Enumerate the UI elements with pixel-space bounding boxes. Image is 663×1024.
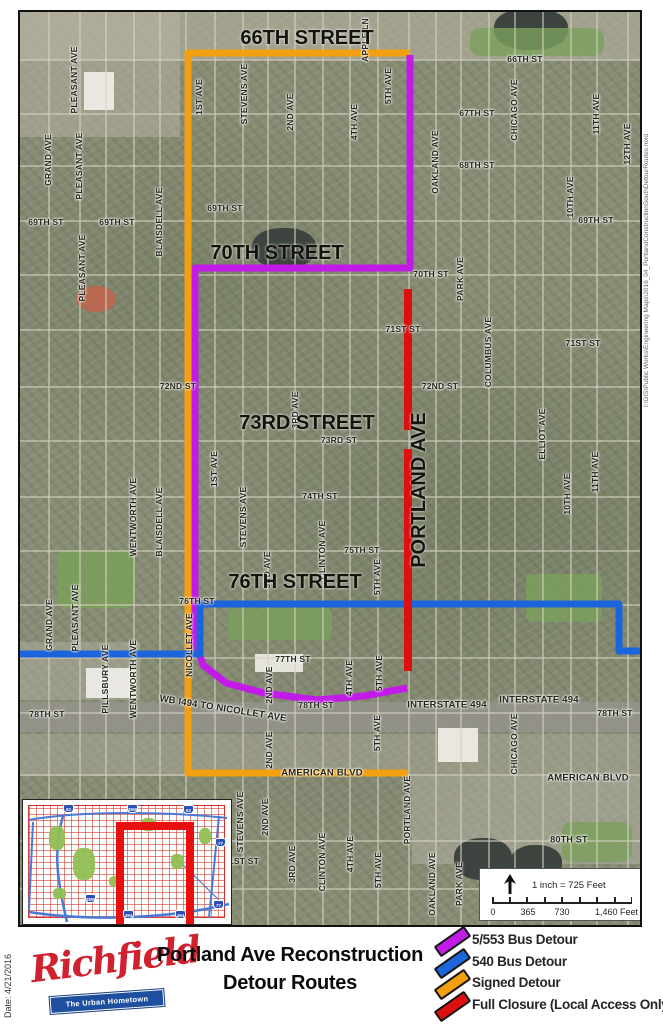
map-feature [57,550,135,608]
street-label: 72ND ST [160,382,196,391]
street-line [460,12,462,925]
map-feature [470,28,604,56]
scale-bar [492,902,632,904]
street-label: 4TH AVE [346,836,355,872]
legend-swatch-wrap [430,929,472,950]
street-label: PLEASANT AVE [78,234,87,301]
street-label: STEVENS AVE [236,792,245,853]
major-street-label: PORTLAND AVE [409,412,429,568]
major-street-label: 70TH STREET [210,243,343,263]
street-line [294,12,296,925]
street-line [20,165,640,167]
inset-park [171,854,184,869]
street-label: 5TH AVE [384,68,393,104]
street-label: INTERSTATE 494 [407,700,487,710]
street-label: 10TH AVE [563,473,572,514]
map-feature [84,72,114,110]
street-label: OAKLAND AVE [431,130,440,194]
street-line [20,274,640,276]
legend-row: 540 Bus Detour [430,951,663,973]
major-street-label: 66TH STREET [240,28,373,48]
map-title-line1: Portland Ave Reconstruction [150,944,430,967]
street-line [570,12,572,925]
street-label: OAKLAND AVE [428,852,437,916]
street-label: 4TH AVE [350,104,359,140]
legend-label: Full Closure (Local Access Only) [472,997,663,1012]
legend: 5/553 Bus Detour540 Bus DetourSigned Det… [430,929,663,1015]
highway-shield: 35W [127,804,138,813]
legend-row: Full Closure (Local Access Only) [430,994,663,1016]
street-line [488,12,490,925]
street-label: GRAND AVE [44,134,53,186]
highway-shield: 35W [85,894,96,903]
scale-ratio-label: 1 inch = 725 Feet [532,880,606,891]
street-label: 70TH ST [413,270,448,279]
street-label: 2ND AVE [265,731,274,768]
street-label: 78TH ST [597,709,632,718]
street-label: PARK AVE [455,862,464,906]
scale-tick-730: 730 [554,907,569,917]
legend-row: 5/553 Bus Detour [430,929,663,951]
richfield-logo-tagline: The Urban Hometown [50,989,165,1014]
street-label: GRAND AVE [45,599,54,651]
street-label: 12TH AVE [623,123,632,164]
street-line [20,59,640,61]
street-line [20,604,640,606]
legend-label: Signed Detour [472,975,560,990]
inset-park [49,826,65,850]
street-line [20,113,640,115]
highway-shield: 494 [175,910,186,919]
street-label: 75TH ST [344,546,379,555]
street-label: 77TH ST [275,655,310,664]
street-line [542,12,544,925]
street-label: 11TH AVE [592,94,601,135]
street-label: 78TH ST [29,710,64,719]
map-feature [526,574,602,622]
street-label: 69TH ST [207,204,242,213]
map-title-line2: Detour Routes [150,972,430,995]
street-label: NICOLLET AVE [185,613,194,677]
street-label: INTERSTATE 494 [499,695,579,705]
major-street-label: 76TH STREET [228,572,361,592]
street-line [349,12,351,925]
street-label: 71ST ST [386,325,421,334]
street-label: AMERICAN BLVD [281,768,363,778]
street-label: WENTWORTH AVE [129,478,138,557]
street-line [159,12,161,925]
highway-shield: 62 [63,804,74,813]
street-label: 68TH ST [459,161,494,170]
street-line [242,12,244,925]
scale-tick-365: 365 [520,907,535,917]
street-label: 69TH ST [28,218,63,227]
legend-swatch-wrap [430,994,472,1015]
legend-row: Signed Detour [430,972,663,994]
street-label: AMERICAN BLVD [547,773,629,783]
highway-shield: 62 [183,805,194,814]
street-label: 69TH ST [578,216,613,225]
inset-park [199,828,211,844]
scale-bar-box: 1 inch = 725 Feet 0 365 730 1,460 Feet [479,868,642,921]
legend-swatch [434,990,472,1022]
inset-park [73,848,95,880]
street-line [267,12,269,925]
highway-shield: 77 [213,900,224,909]
street-label: 10TH AVE [566,176,575,217]
street-label: 80TH ST [550,836,587,845]
street-label: CLINTON AVE [318,833,327,892]
north-arrow-icon [502,873,518,897]
street-label: 66TH ST [507,55,542,64]
street-label: CHICAGO AVE [510,713,519,774]
street-line [322,12,324,925]
inset-highways [23,800,233,926]
street-label: 2ND AVE [286,93,295,130]
street-line [20,386,640,388]
major-street-label: 73RD STREET [239,413,375,433]
scale-end-label: 1,460 Feet [595,907,638,917]
street-label: PLEASANT AVE [70,46,79,113]
street-label: PLEASANT AVE [71,584,80,651]
street-line [20,329,640,331]
street-label: ELLIOT AVE [538,408,547,459]
street-label: 5TH AVE [374,852,383,888]
street-label: 5TH AVE [375,655,384,691]
street-label: 1ST ST [229,857,259,866]
street-label: 71ST ST [566,339,601,348]
inset-highlight-right [186,822,194,924]
street-label: STEVENS AVE [240,64,249,125]
street-label: PLEASANT AVE [75,132,84,199]
street-label: 2ND AVE [265,666,274,703]
street-line [20,550,640,552]
street-label: 78TH ST [298,701,333,710]
inset-park [53,888,66,899]
file-path-credit: I:\GIS\Public Works\Engineering Maps\201… [643,22,650,407]
street-label: COLUMBUS AVE [484,317,493,387]
inset-highlight-left [116,822,124,924]
street-label: 73RD ST [321,436,357,445]
street-label: STEVENS AVE [239,487,248,548]
street-label: PORTLAND AVE [403,776,412,845]
street-line [377,12,379,925]
inset-highlight-top [116,822,194,830]
street-label: 74TH ST [302,492,337,501]
street-label: 76TH ST [179,597,214,606]
scale-tick-0: 0 [490,907,495,917]
map-sheet: PLEASANT AVEGRAND AVEPLEASANT AVEPLEASAN… [0,0,663,1024]
street-label: 72ND ST [422,382,458,391]
street-label: 69TH ST [99,218,134,227]
highway-shield: 77 [215,838,226,847]
aerial-map[interactable]: PLEASANT AVEGRAND AVEPLEASANT AVEPLEASAN… [18,10,642,927]
street-label: BLAISDELL AVE [155,187,164,256]
street-line [20,657,640,659]
date-label: Date: 4/21/2016 [3,938,13,1018]
street-label: 5TH AVE [373,715,382,751]
street-line [105,12,107,925]
legend-swatch-wrap [430,972,472,993]
street-label: PILLSBURY AVE [101,644,110,713]
street-label: PARK AVE [456,257,465,301]
street-label: BLAISDELL AVE [155,487,164,556]
street-label: 67TH ST [459,109,494,118]
street-label: CHICAGO AVE [510,79,519,140]
street-label: WENTWORTH AVE [129,640,138,719]
map-feature [438,728,478,762]
street-line [133,12,135,925]
street-label: 1ST AVE [195,79,204,115]
street-line [20,712,640,714]
legend-label: 5/553 Bus Detour [472,932,578,947]
street-label: 3RD AVE [288,845,297,882]
highway-shield: 494 [123,910,134,919]
street-line [185,12,187,925]
street-label: 1ST AVE [210,451,219,487]
street-label: 11TH AVE [591,452,600,493]
street-label: 2ND AVE [261,798,270,835]
street-line [514,12,516,925]
legend-label: 540 Bus Detour [472,954,567,969]
street-label: 4TH AVE [345,660,354,696]
inset-overview-map: 6235W627735W49449477 [22,799,232,925]
street-label: 5TH AVE [373,559,382,595]
legend-swatch-wrap [430,951,472,972]
